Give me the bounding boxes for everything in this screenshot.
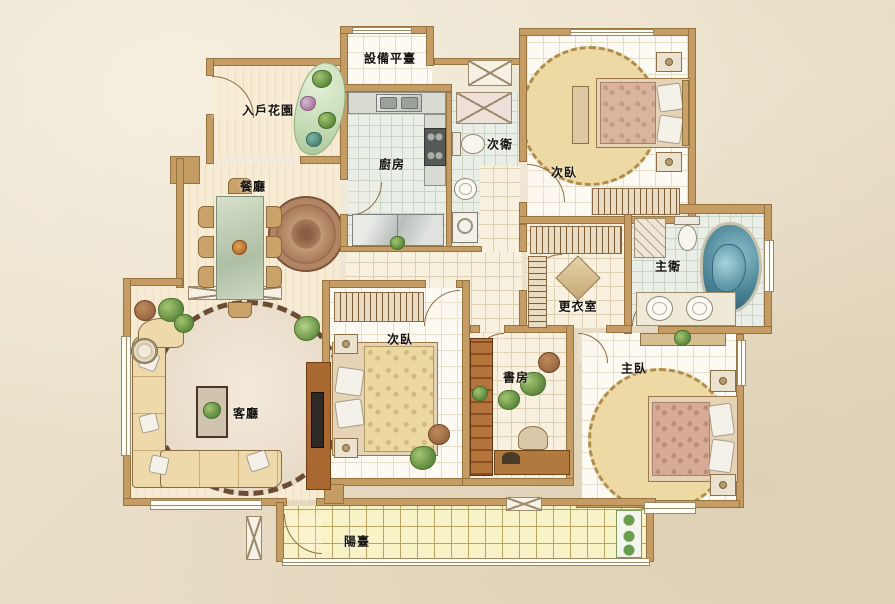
chair-icon xyxy=(228,302,252,318)
tv-icon xyxy=(311,392,324,448)
nightstand-icon xyxy=(710,370,736,392)
wall xyxy=(276,502,284,562)
pillow-icon xyxy=(656,82,684,112)
wardrobe-icon xyxy=(530,226,622,254)
wall xyxy=(606,325,632,333)
wall xyxy=(624,212,632,332)
round-table-icon xyxy=(131,338,158,364)
chair-icon xyxy=(198,206,214,228)
headboard xyxy=(682,80,689,146)
wall xyxy=(123,278,183,286)
toilet-icon xyxy=(674,216,700,225)
planter-box-icon xyxy=(616,510,642,558)
wall xyxy=(170,156,200,184)
room-label-balcony: 陽臺 xyxy=(344,533,370,550)
room-balcony xyxy=(282,506,648,560)
room-label-equipment-platform: 設備平臺 xyxy=(364,50,416,67)
room-label-kitchen: 廚房 xyxy=(379,156,405,173)
window xyxy=(150,500,262,510)
room-label-living: 客廳 xyxy=(233,405,259,422)
room-label-secondary-bedroom-mid: 次臥 xyxy=(387,331,413,348)
wall xyxy=(470,325,480,333)
room-label-secondary-bedroom-top: 次臥 xyxy=(551,164,577,181)
chair-icon xyxy=(198,266,214,288)
balcony-railing xyxy=(282,558,650,566)
wall xyxy=(426,26,434,66)
window xyxy=(570,29,654,36)
kitchen-sink-icon xyxy=(401,97,418,109)
room-label-entry-garden: 入戶花園 xyxy=(242,102,294,119)
toilet-icon xyxy=(452,132,461,156)
toilet-icon xyxy=(678,225,697,251)
desk-lamp-icon xyxy=(502,452,520,464)
plant-pot-icon xyxy=(428,424,450,445)
shower-icon xyxy=(456,92,512,124)
window-ledge xyxy=(506,497,542,511)
chair-icon xyxy=(266,206,282,228)
chair-icon xyxy=(266,236,282,258)
nightstand-icon xyxy=(334,438,358,458)
room-label-dining: 餐廳 xyxy=(240,178,266,195)
pillow-icon xyxy=(708,439,735,474)
wall xyxy=(340,246,482,252)
sink-icon xyxy=(686,296,713,321)
window xyxy=(764,240,774,292)
window xyxy=(644,502,696,514)
wall xyxy=(462,280,470,486)
shower-icon xyxy=(634,218,666,258)
bookshelf-icon xyxy=(470,338,493,476)
sink-icon xyxy=(646,296,673,321)
stove-icon xyxy=(424,128,446,166)
window xyxy=(737,340,746,386)
wardrobe-icon xyxy=(528,256,547,328)
pillow-icon xyxy=(656,114,684,144)
bed-mattress xyxy=(600,82,656,144)
window xyxy=(352,27,412,34)
wall xyxy=(322,478,470,486)
wall xyxy=(206,58,214,76)
wall xyxy=(519,216,696,224)
pillow-icon xyxy=(334,366,364,396)
pillow-icon xyxy=(334,398,364,428)
wall xyxy=(340,84,452,92)
nightstand-icon xyxy=(710,474,736,496)
toilet-icon xyxy=(461,134,485,154)
nightstand-icon xyxy=(656,152,682,172)
wardrobe-icon xyxy=(592,188,680,215)
room-label-dressing: 更衣室 xyxy=(558,298,597,315)
room-label-master-bedroom: 主臥 xyxy=(621,360,647,377)
wall xyxy=(206,114,214,164)
chair-icon xyxy=(198,236,214,258)
corridor xyxy=(480,166,520,252)
window xyxy=(121,336,131,456)
bed-mattress xyxy=(652,402,710,476)
wall xyxy=(519,28,527,162)
floor-plan: 設備平臺 入戶花園 廚房 次衛 次臥 餐廳 主衛 更衣室 次臥 書房 主臥 客廳… xyxy=(0,0,895,604)
chair-icon xyxy=(266,266,282,288)
nightstand-icon xyxy=(334,334,358,354)
room-label-study: 書房 xyxy=(503,369,529,386)
bed-mattress xyxy=(364,346,434,452)
plant-pot-icon xyxy=(134,300,156,321)
bench-icon xyxy=(572,86,589,144)
plant-pot-icon xyxy=(538,352,560,373)
wall xyxy=(519,224,527,252)
room-label-secondary-bath: 次衛 xyxy=(487,136,513,153)
wall xyxy=(316,498,656,506)
window-ledge xyxy=(246,516,262,560)
desk-chair-icon xyxy=(518,426,548,450)
pillow-icon xyxy=(148,454,169,475)
wall xyxy=(176,158,184,288)
kitchen-sink-icon xyxy=(380,97,397,109)
pillow-icon xyxy=(708,403,735,438)
ac-platform xyxy=(468,60,512,86)
sink-icon xyxy=(454,178,477,200)
washing-machine-icon xyxy=(457,218,473,234)
room-label-master-bath: 主衛 xyxy=(655,258,681,275)
wardrobe-icon xyxy=(334,292,424,322)
wall xyxy=(462,478,574,486)
nightstand-icon xyxy=(656,52,682,72)
wall xyxy=(322,280,426,288)
